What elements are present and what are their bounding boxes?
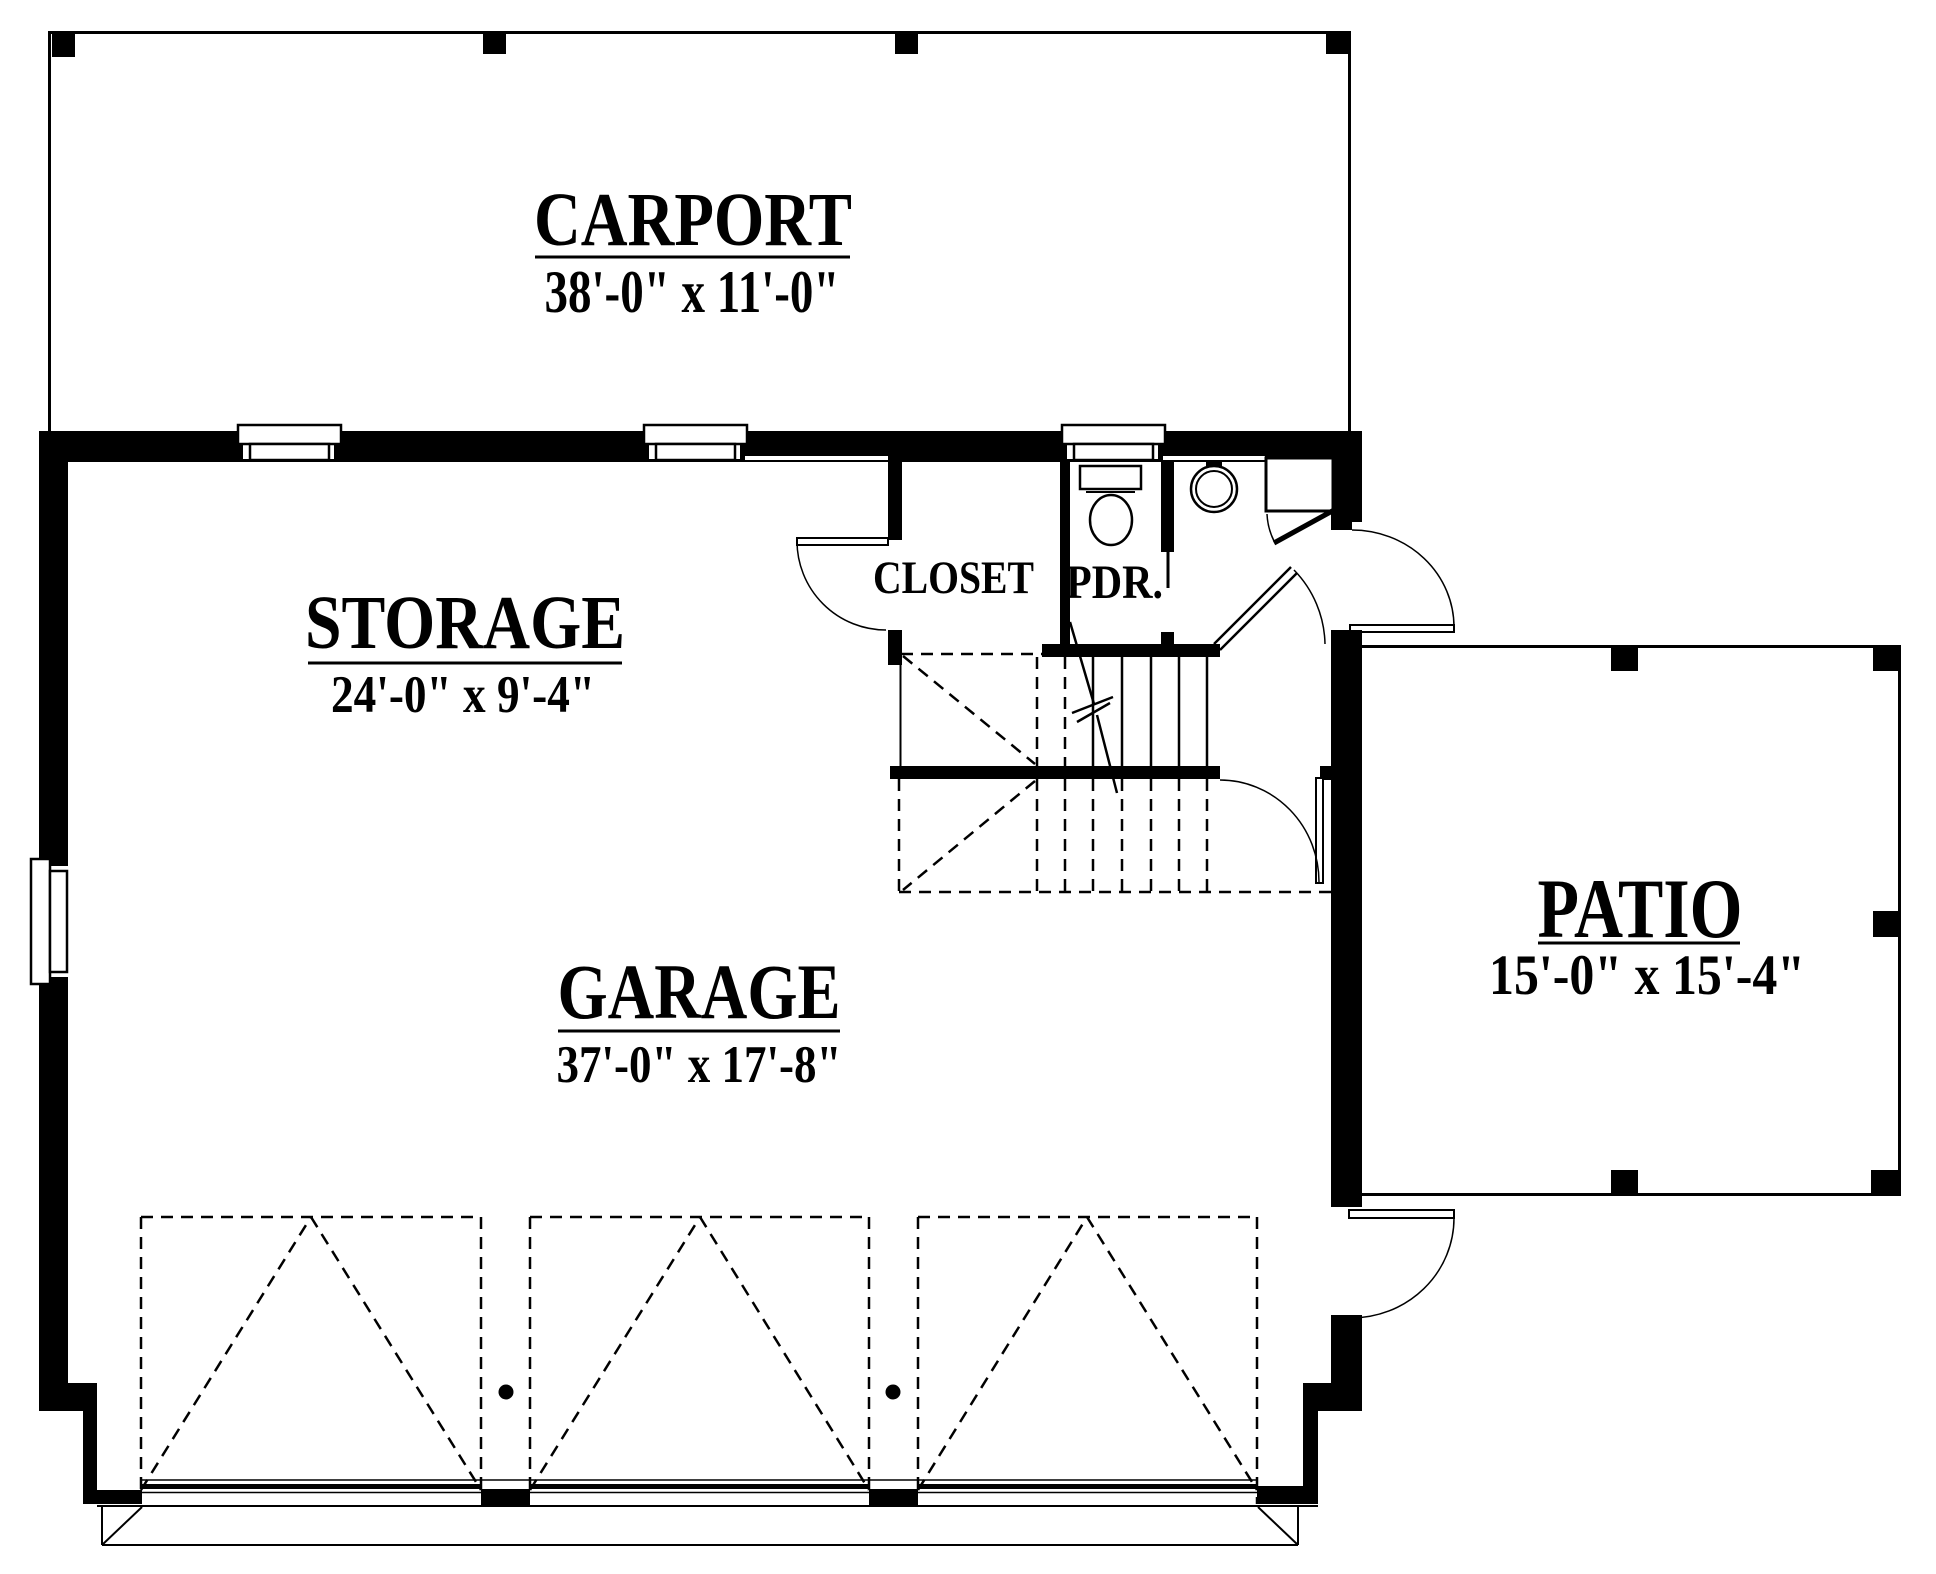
svg-text:GARAGE: GARAGE: [558, 948, 841, 1035]
svg-text:CARPORT: CARPORT: [534, 178, 852, 262]
svg-text:37'-0" x 17'-8": 37'-0" x 17'-8": [557, 1036, 842, 1094]
svg-text:CLOSET: CLOSET: [873, 552, 1034, 604]
svg-text:PDR.: PDR.: [1066, 556, 1163, 609]
svg-text:15'-0" x 15'-4": 15'-0" x 15'-4": [1489, 944, 1805, 1007]
svg-text:STORAGE: STORAGE: [305, 581, 625, 665]
svg-text:24'-0" x 9'-4": 24'-0" x 9'-4": [331, 666, 595, 724]
svg-text:38'-0" x 11'-0": 38'-0" x 11'-0": [545, 259, 840, 325]
